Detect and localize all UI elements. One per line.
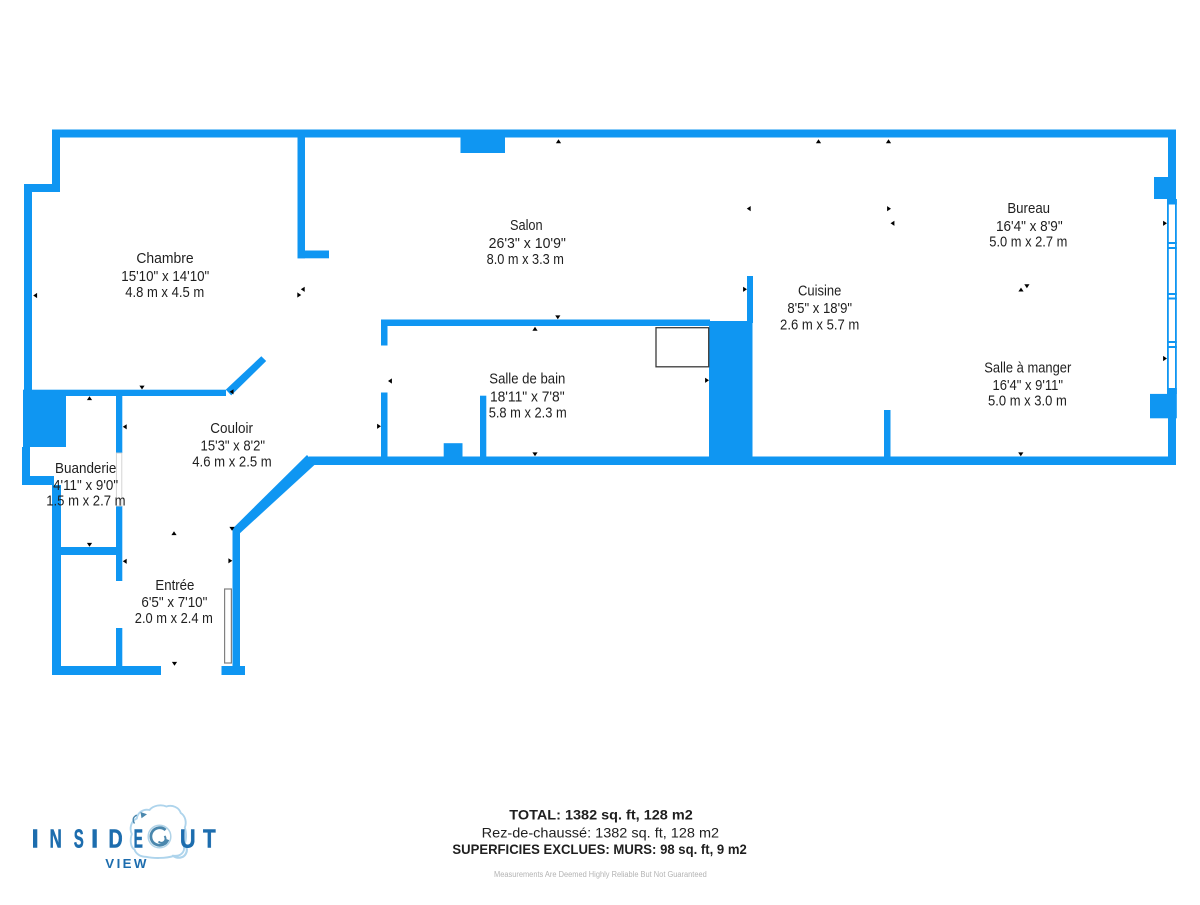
svg-text:Chambre: Chambre	[136, 251, 193, 267]
svg-text:6'5" x 7'10": 6'5" x 7'10"	[141, 595, 207, 611]
svg-text:Bureau: Bureau	[1007, 201, 1050, 217]
svg-text:S: S	[74, 824, 84, 854]
svg-text:15'10" x 14'10": 15'10" x 14'10"	[121, 269, 209, 285]
svg-text:N: N	[50, 824, 62, 854]
svg-text:Entrée: Entrée	[155, 578, 194, 594]
svg-text:Salle de bain: Salle de bain	[489, 372, 565, 388]
svg-text:Cuisine: Cuisine	[798, 283, 841, 299]
svg-text:SUPERFICIES EXCLUES: MURS: 98: SUPERFICIES EXCLUES: MURS: 98 sq. ft, 9 …	[452, 842, 747, 857]
svg-text:D: D	[109, 824, 123, 854]
svg-text:4'11" x 9'0": 4'11" x 9'0"	[53, 478, 118, 494]
svg-text:5.0 m x 2.7 m: 5.0 m x 2.7 m	[989, 234, 1067, 250]
svg-text:VIEW: VIEW	[105, 856, 149, 871]
svg-text:2.0 m x 2.4 m: 2.0 m x 2.4 m	[135, 611, 213, 627]
svg-text:15'3" x 8'2": 15'3" x 8'2"	[201, 438, 266, 454]
svg-text:8.0 m x 3.3 m: 8.0 m x 3.3 m	[487, 252, 564, 268]
svg-text:4.8 m x 4.5 m: 4.8 m x 4.5 m	[125, 285, 204, 301]
svg-text:E: E	[134, 824, 143, 854]
svg-text:T: T	[203, 824, 216, 854]
svg-text:5.0 m x 3.0 m: 5.0 m x 3.0 m	[988, 394, 1067, 410]
svg-text:26'3" x 10'9": 26'3" x 10'9"	[489, 236, 566, 252]
svg-text:18'11" x 7'8": 18'11" x 7'8"	[490, 389, 565, 405]
svg-text:Buanderie: Buanderie	[55, 461, 116, 477]
svg-text:16'4" x 8'9": 16'4" x 8'9"	[996, 219, 1063, 235]
svg-text:1.5 m x 2.7 m: 1.5 m x 2.7 m	[46, 494, 125, 510]
svg-text:Measurements Are Deemed Highly: Measurements Are Deemed Highly Reliable …	[494, 870, 707, 879]
svg-text:Salon: Salon	[510, 218, 543, 234]
svg-text:16'4" x 9'11": 16'4" x 9'11"	[993, 378, 1064, 394]
svg-text:4.6 m x 2.5 m: 4.6 m x 2.5 m	[192, 454, 272, 470]
svg-text:Couloir: Couloir	[210, 421, 253, 437]
svg-text:U: U	[180, 824, 196, 854]
svg-text:5.8 m x 2.3 m: 5.8 m x 2.3 m	[489, 406, 567, 422]
svg-text:TOTAL: 1382 sq. ft, 128 m2: TOTAL: 1382 sq. ft, 128 m2	[509, 808, 693, 823]
svg-text:I: I	[32, 824, 39, 854]
svg-text:2.6 m x 5.7 m: 2.6 m x 5.7 m	[780, 317, 859, 333]
svg-text:Rez-de-chaussé: 1382 sq. ft, 1: Rez-de-chaussé: 1382 sq. ft, 128 m2	[482, 826, 719, 841]
svg-text:Salle à manger: Salle à manger	[984, 360, 1071, 376]
svg-text:8'5" x 18'9": 8'5" x 18'9"	[787, 301, 852, 317]
svg-text:I: I	[91, 824, 98, 854]
